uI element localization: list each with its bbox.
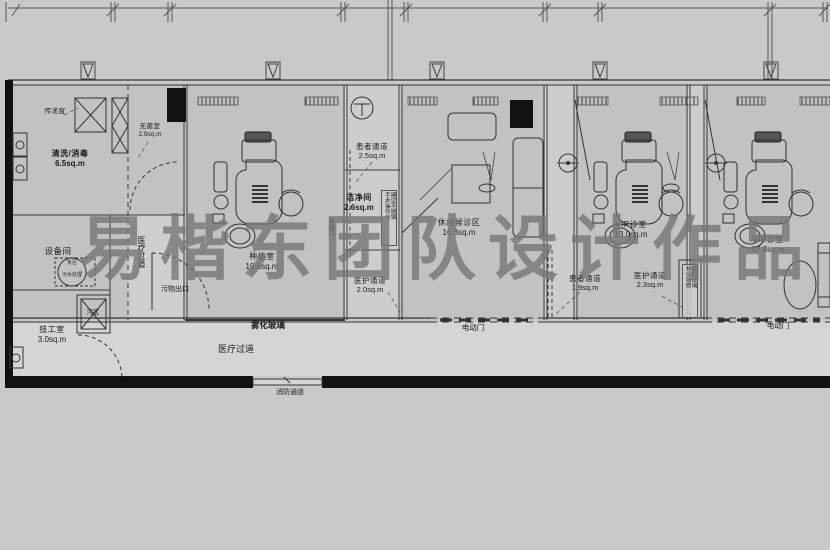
room-label-staff-passage-2: 医护通道 2.3sq.m xyxy=(634,271,666,289)
room-label-waiting: 休闲候诊区 16.8sq.m xyxy=(438,218,481,237)
medical-corridor-vertical-label: 医疗过道 xyxy=(136,236,147,298)
room-label-negative-pressure: 负压 xyxy=(67,261,77,267)
partition-note: 磨砂玻璃 移动隔断 xyxy=(682,264,698,318)
room-label-washing: 清洗/消毒 6.5sq.m xyxy=(52,149,89,168)
room-label-dirty-zone: 污区 xyxy=(87,309,100,317)
level-marker-icons xyxy=(81,62,778,79)
waste-exit-label: 污物出口 xyxy=(161,286,189,294)
fog-glass-label: 雾化玻璃 xyxy=(251,320,285,330)
room-label-equipment: 设备间 xyxy=(44,246,71,256)
room-label-sterile: 无菌室 2.9sq.m xyxy=(138,123,161,139)
electric-door-right-label: 电动门 xyxy=(767,321,790,330)
fire-corridor-label: 消防通道 xyxy=(276,389,304,397)
floor-plan-canvas: 传递窗 无菌室 2.9sq.m 清洗/消毒 6.5sq.m 设备间 负压 污水处… xyxy=(0,0,830,550)
room-label-staff-passage-1: 医护通道 2.0sq.m xyxy=(354,276,386,294)
medical-corridor-label: 医疗过道 xyxy=(218,344,254,355)
room-label-technician: 技工室 3.0sq.m xyxy=(38,325,66,344)
room-label-vip-1: VIP诊室 13.0sq.m xyxy=(615,220,648,239)
floor-plan-linework xyxy=(0,0,830,550)
room-label-pass-window: 传递窗 xyxy=(45,108,66,116)
foot-door-label: 脚踏门 xyxy=(326,218,335,252)
room-label-sewage: 污水处理 xyxy=(62,273,82,279)
room-label-implant: 种植室 19.6sq.m xyxy=(246,252,279,271)
room-label-vip-2: VIP诊室 17.8sq.m xyxy=(752,235,785,254)
stainless-steel-note: 建议不锈钢 手术操作台 xyxy=(381,190,397,246)
tv-block xyxy=(510,100,533,128)
room-label-patient-passage-2: 患者通道 1.9sq.m xyxy=(569,274,601,292)
column-block xyxy=(167,88,186,122)
grid-tick-line xyxy=(6,0,830,80)
electric-door-left-label: 电动门 xyxy=(462,323,485,332)
room-label-clean-room: 洁净间 2.6sq.m xyxy=(344,193,374,212)
room-label-patient-passage-1: 患者通道 2.5sq.m xyxy=(356,142,388,160)
